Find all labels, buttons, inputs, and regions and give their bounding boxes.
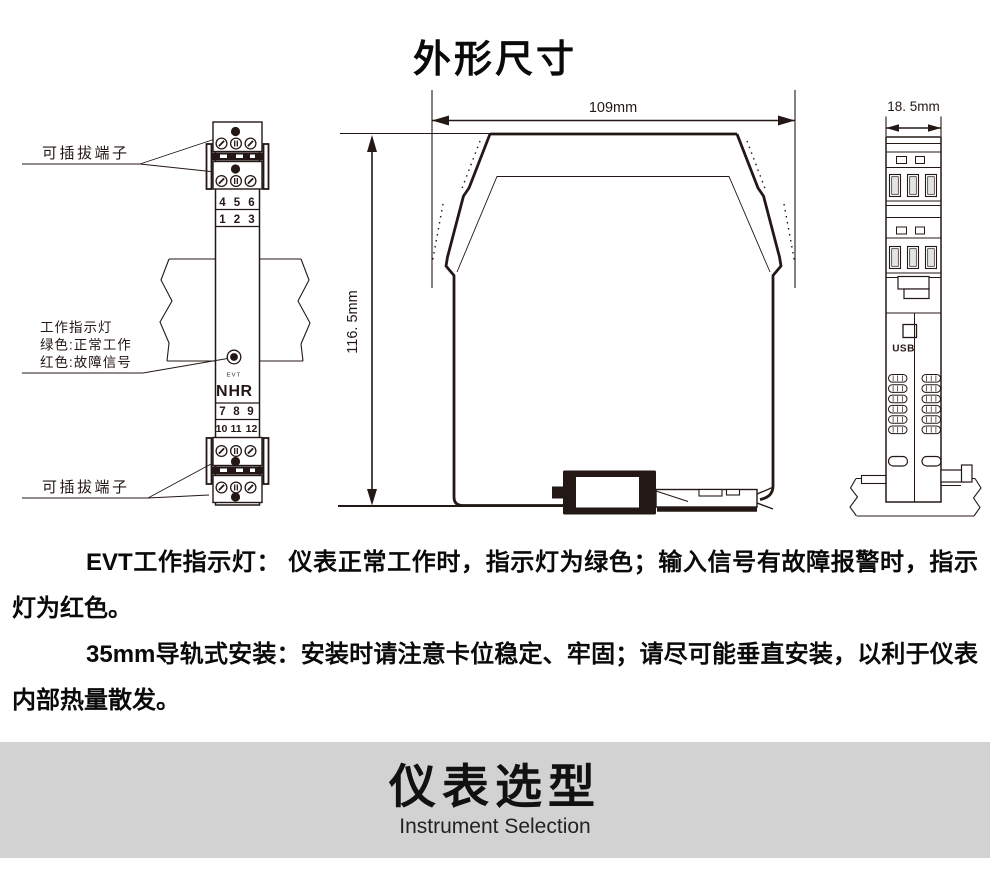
terminal-number: 5 [234, 197, 241, 209]
inner-panel-line [457, 177, 770, 273]
rail-clip-assembly [552, 471, 773, 515]
terminal-number: 9 [247, 406, 253, 418]
callout-top-terminals: 可插拔端子 [22, 140, 214, 172]
screw-terminals-row3 [216, 446, 256, 457]
housing-outline [446, 134, 781, 506]
indicator-label-line2: 绿色:正常工作 [40, 337, 132, 353]
usb-label: USB [892, 344, 915, 355]
indicator-label-line1: 工作指示灯 [40, 320, 113, 335]
banner-subtitle: Instrument Selection [399, 815, 590, 839]
arrowhead-left [886, 124, 899, 132]
end-width-dimension: 18. 5mm [886, 99, 941, 136]
terminal-number: 1 [219, 214, 226, 226]
note-rail-mounting: 35mm导轨式安装：安装时请注意卡位稳定、牢固；请尽可能垂直安装，以利于仪表内部… [12, 632, 978, 724]
terminal-number: 6 [248, 197, 254, 209]
page: 外形尺寸 [0, 0, 990, 881]
arrowhead-down [367, 489, 377, 506]
banner-title: 仪表选型 [389, 761, 601, 813]
arrowhead-up [367, 135, 377, 152]
width-dim-label: 109mm [589, 100, 637, 116]
logo-letter-h: H [229, 383, 241, 400]
top-terminal-assembly [207, 122, 269, 189]
terminal-number: 8 [233, 406, 240, 418]
terminal-number: 2 [234, 214, 240, 226]
front-panel-view: 4 5 6 1 2 3 EVT N H R [22, 122, 310, 505]
logo-letter-n: N [216, 383, 228, 400]
screw-terminals-row2 [216, 176, 256, 187]
logo-letter-r: R [241, 383, 253, 400]
callout-label: 可插拔端子 [42, 479, 130, 496]
dimension-drawing: 4 5 6 1 2 3 EVT N H R [0, 0, 990, 535]
note-evt-indicator: EVT工作指示灯： 仪表正常工作时，指示灯为绿色；输入信号有故障报警时，指示灯为… [12, 540, 978, 632]
brand-logo: N H R [216, 383, 253, 400]
callout-indicator: 工作指示灯 绿色:正常工作 红色:故障信号 [22, 320, 228, 373]
callout-label: 可插拔端子 [42, 145, 130, 162]
width-dimension: 109mm [432, 90, 795, 288]
side-profile-view: 109mm 116. 5mm [338, 90, 795, 515]
terminal-number: 3 [248, 214, 254, 226]
screw-terminals-row1 [216, 138, 256, 149]
indicator-label-line3: 红色:故障信号 [40, 354, 132, 370]
terminal-number: 11 [230, 423, 241, 435]
terminal-number: 10 [216, 423, 228, 435]
end-width-label: 18. 5mm [887, 99, 940, 114]
description-notes: EVT工作指示灯： 仪表正常工作时，指示灯为绿色；输入信号有故障报警时，指示灯为… [12, 540, 978, 724]
terminal-number: 12 [246, 423, 258, 435]
arrowhead-right [928, 124, 941, 132]
terminal-numbers-bottom: 7 8 9 10 11 12 [216, 403, 260, 435]
screw-terminals-row4 [216, 482, 256, 493]
callout-bottom-terminals: 可插拔端子 [22, 464, 211, 498]
end-view: 18. 5mm [850, 99, 981, 516]
terminal-number: 4 [219, 197, 226, 209]
end-rail-clip [941, 465, 972, 486]
height-dimension: 116. 5mm [338, 134, 564, 507]
height-dim-label: 116. 5mm [345, 290, 361, 353]
section-banner: 仪表选型 Instrument Selection [0, 742, 990, 858]
terminal-number: 7 [219, 406, 225, 418]
arrowhead-left [432, 116, 449, 126]
led-label: EVT [227, 373, 242, 379]
arrowhead-right [778, 116, 795, 126]
bottom-terminal-assembly [207, 438, 269, 503]
